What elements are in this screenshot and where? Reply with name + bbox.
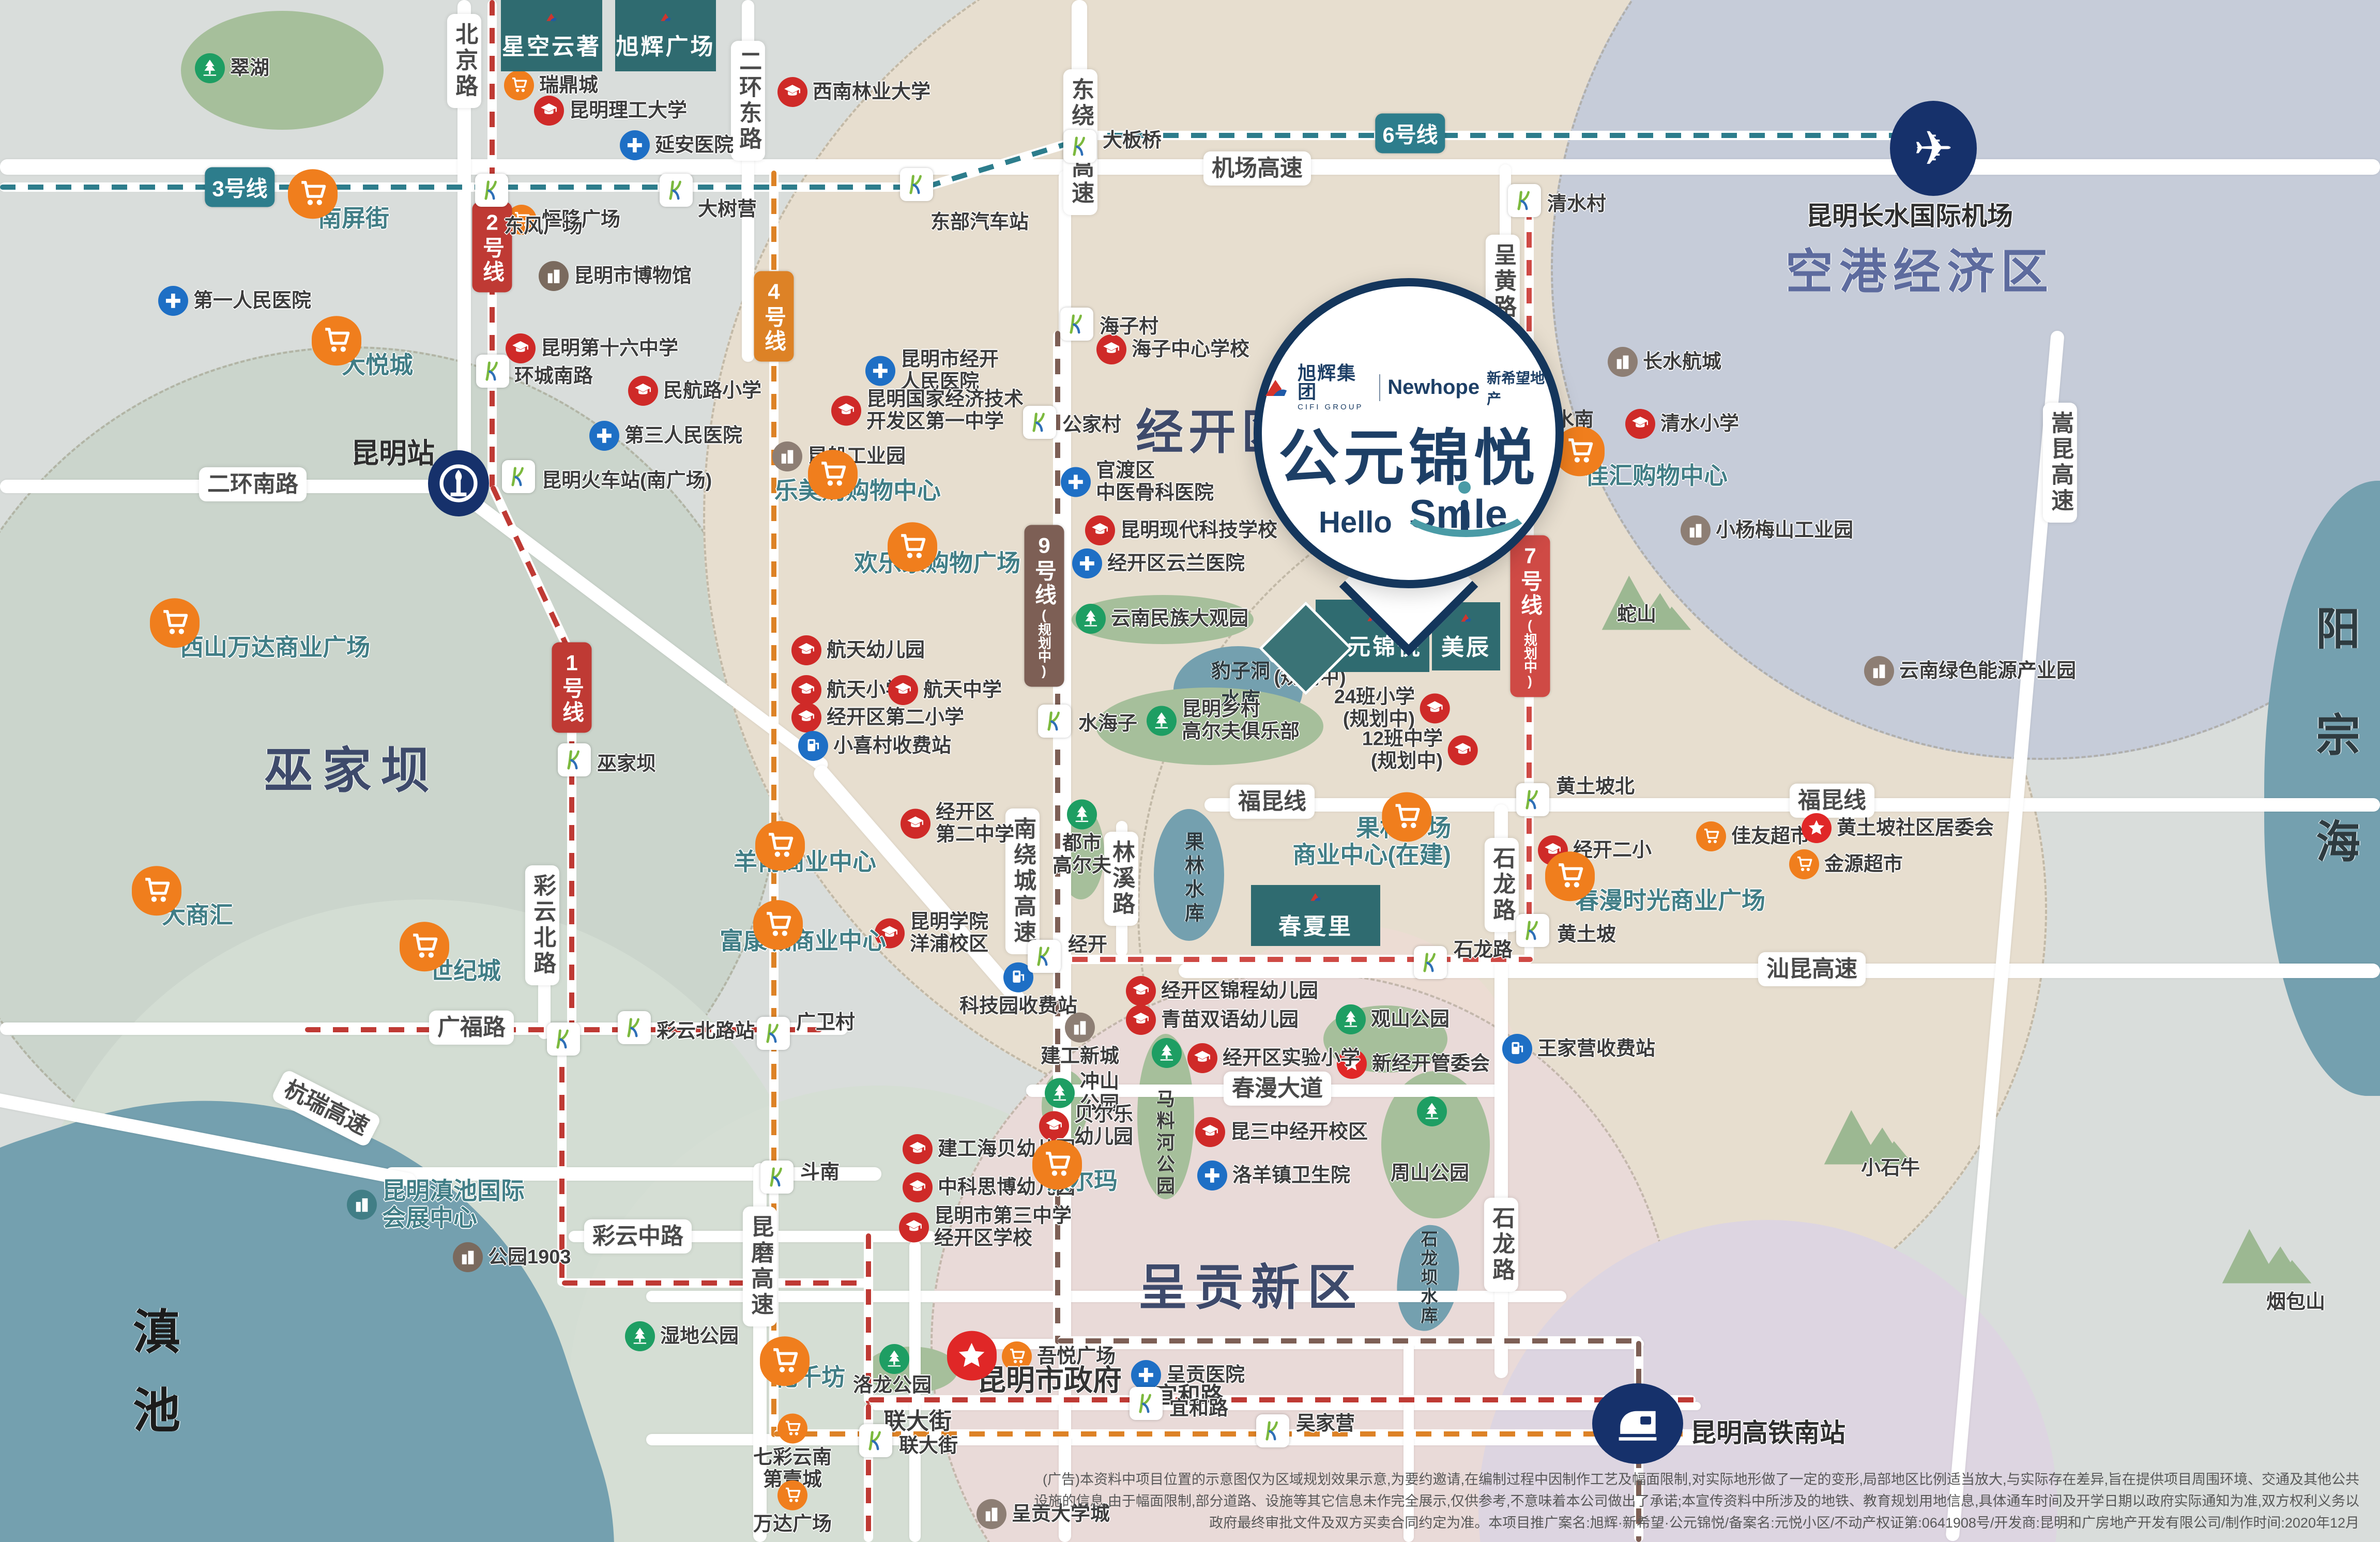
mall-glyph bbox=[295, 176, 330, 211]
station-label: 海子村 bbox=[1100, 310, 1158, 339]
industry-icon bbox=[772, 441, 802, 471]
park-icon bbox=[625, 1321, 655, 1351]
cifi-glyph bbox=[545, 10, 558, 24]
area-label: 空港经济区 bbox=[1786, 234, 2054, 302]
park-glyph bbox=[199, 57, 221, 79]
museum-icon bbox=[453, 1242, 483, 1272]
poi-industry[interactable]: 建工新城 bbox=[1041, 1013, 1119, 1068]
location-map: 旭辉集团 CIFI GROUP Newhope 新希望地产 公元锦悦 Hello… bbox=[0, 0, 2380, 1542]
poi-label: 观山公园 bbox=[1371, 1009, 1450, 1031]
mall-glyph bbox=[815, 457, 850, 493]
metro-station[interactable] bbox=[475, 174, 508, 207]
poi-label: 昆明学院洋浦校区 bbox=[910, 911, 988, 955]
metro-station[interactable] bbox=[660, 174, 693, 207]
toll-glyph bbox=[1008, 967, 1029, 988]
metro-station[interactable] bbox=[757, 1017, 790, 1050]
school-icon bbox=[1195, 1117, 1225, 1147]
poi-school[interactable]: 航天幼儿园 bbox=[791, 635, 925, 665]
poi-label: 12班中学(规划中) bbox=[1362, 728, 1443, 772]
poi-label: 民航路小学 bbox=[663, 380, 761, 402]
mall-glyph bbox=[508, 74, 530, 96]
poi-school[interactable]: 清水小学 bbox=[1625, 409, 1739, 439]
cifi-mini-logo bbox=[659, 10, 673, 24]
poi-label: 清水小学 bbox=[1660, 413, 1739, 435]
mall-glyph bbox=[406, 928, 442, 964]
poi-label: 公园1903 bbox=[488, 1246, 571, 1269]
road-label: 嵩昆高速 bbox=[2043, 403, 2077, 523]
poi-label: 航天中学 bbox=[923, 679, 1002, 701]
metro-station[interactable] bbox=[558, 743, 591, 776]
metro-K-icon bbox=[664, 178, 688, 202]
poi-label: 航天幼儿园 bbox=[827, 639, 925, 662]
station-label: 黄土坡北 bbox=[1556, 770, 1635, 799]
school-glyph bbox=[510, 338, 531, 359]
poi-label: 佳友超市 bbox=[1731, 826, 1810, 848]
park-icon bbox=[1045, 1078, 1075, 1108]
metro-K-icon bbox=[1068, 134, 1092, 158]
poi-school[interactable]: 昆明理工大学 bbox=[534, 96, 687, 126]
mall-glyph bbox=[762, 828, 798, 864]
metro-station[interactable] bbox=[547, 1022, 580, 1056]
poi-label: 欢乐家购物广场 bbox=[854, 550, 1020, 577]
road-segment bbox=[0, 159, 2380, 175]
metro-station[interactable] bbox=[1060, 308, 1093, 341]
poi-label: 西山万达商业广场 bbox=[180, 634, 370, 661]
mall-icon bbox=[777, 1413, 807, 1443]
metro-K-icon bbox=[1521, 919, 1545, 942]
station-label: 大树营 bbox=[698, 193, 757, 221]
hospital-glyph bbox=[624, 134, 646, 156]
poi-mall[interactable]: 大商汇 bbox=[157, 902, 233, 929]
poi-mall[interactable]: 春漫时光商业广场 bbox=[1570, 888, 1765, 914]
poi-school[interactable]: 昆明市第三中学经开区学校 bbox=[899, 1205, 1072, 1249]
hospital-glyph bbox=[593, 425, 615, 447]
hospital-glyph bbox=[1076, 553, 1098, 574]
road-label: 机场高速 bbox=[1203, 151, 1311, 186]
mall-glyph bbox=[1700, 826, 1722, 847]
park-icon bbox=[1147, 706, 1177, 736]
development-box[interactable]: 旭辉广场 bbox=[615, 0, 716, 71]
park-glyph bbox=[1049, 1082, 1071, 1104]
gov-icon bbox=[1802, 813, 1832, 843]
poi-museum[interactable]: 公园1903 bbox=[453, 1242, 571, 1272]
mall-icon bbox=[132, 866, 181, 915]
poi-school[interactable]: 经开区第二小学 bbox=[791, 703, 964, 732]
industry-glyph bbox=[776, 446, 798, 467]
poi-hospital[interactable]: 呈贡医院 bbox=[1131, 1360, 1245, 1390]
metro-K-icon bbox=[562, 748, 586, 772]
metro-station[interactable] bbox=[1516, 914, 1549, 947]
cifi-mini-logo bbox=[545, 10, 558, 24]
poi-label: 长水航城 bbox=[1643, 351, 1721, 373]
poi-label: 金源超市 bbox=[1824, 853, 1903, 876]
station-label: 环城南路 bbox=[514, 360, 593, 388]
metro-station[interactable] bbox=[1508, 184, 1541, 217]
school-icon bbox=[791, 635, 821, 665]
poi-school[interactable]: 12班中学(规划中) bbox=[1362, 728, 1478, 772]
area-label: 昆明站 bbox=[351, 431, 435, 471]
poi-label: 万达广场 bbox=[753, 1514, 832, 1536]
station-label: 联大街 bbox=[899, 1429, 958, 1458]
park-glyph bbox=[1340, 1009, 1362, 1030]
hospital-glyph bbox=[1065, 471, 1087, 493]
poi-hospital[interactable]: 经开区云兰医院 bbox=[1072, 548, 1245, 578]
school-icon bbox=[901, 808, 930, 838]
toll-icon bbox=[798, 731, 828, 761]
logo-divider bbox=[1379, 374, 1380, 401]
poi-gov[interactable]: 昆明市政府 bbox=[972, 1365, 1122, 1397]
poi-school[interactable]: 海子中心学校 bbox=[1096, 334, 1249, 364]
poi-hospital[interactable]: 延安医院 bbox=[620, 130, 734, 160]
poi-mall[interactable]: 金源超市 bbox=[1789, 849, 1903, 879]
mall-glyph bbox=[139, 873, 174, 908]
metro-station[interactable] bbox=[1414, 946, 1447, 979]
poi-school[interactable]: 西南林业大学 bbox=[777, 77, 930, 107]
metro-station[interactable] bbox=[1038, 705, 1071, 738]
school-glyph bbox=[903, 1216, 925, 1238]
area-label: 果林水库 bbox=[1179, 831, 1207, 926]
bullet-train-glyph bbox=[1611, 1397, 1665, 1451]
poi-hospital[interactable]: 昆明市经开人民医院 bbox=[865, 348, 999, 392]
park-glyph bbox=[1071, 804, 1093, 826]
poi-label: 小喜村收费站 bbox=[833, 735, 951, 757]
hill-label: 小石牛 bbox=[1861, 1152, 1920, 1180]
newhope-brand: Newhope bbox=[1387, 376, 1479, 399]
development-box[interactable]: 星空云著 bbox=[501, 0, 602, 71]
mall-glyph bbox=[1562, 433, 1597, 469]
mall-icon bbox=[1545, 851, 1595, 901]
mall-icon bbox=[777, 1480, 807, 1510]
poi-label: 昆明乡村高尔夫俱乐部 bbox=[1182, 698, 1300, 742]
station-label: 东部汽车站 bbox=[930, 206, 1029, 234]
poi-school[interactable]: 昆明学院洋浦校区 bbox=[875, 911, 988, 955]
china-railway-glyph bbox=[435, 460, 482, 507]
cifi-logo-icon bbox=[1262, 373, 1290, 403]
station-label: 水海子 bbox=[1078, 707, 1137, 736]
school-glyph bbox=[1101, 339, 1122, 360]
poi-mall[interactable]: 南屏街 bbox=[313, 205, 389, 232]
toll-icon bbox=[1502, 1034, 1532, 1064]
poi-label: 昆明国家经济技术开发区第一中学 bbox=[866, 388, 1024, 432]
cifi-glyph bbox=[1309, 890, 1322, 904]
hospital-glyph bbox=[162, 290, 184, 312]
school-glyph bbox=[1130, 980, 1152, 1002]
poi-mall[interactable]: 佳友超市 bbox=[1696, 821, 1810, 851]
poi-park[interactable]: 云南民族大观园 bbox=[1076, 604, 1248, 634]
hospital-icon bbox=[1197, 1161, 1227, 1190]
metro-K-icon bbox=[1521, 788, 1545, 812]
poi-mall[interactable]: 万达广场 bbox=[753, 1480, 832, 1536]
poi-label: 佳汇购物中心 bbox=[1585, 463, 1728, 490]
metro-K-icon bbox=[1028, 410, 1051, 434]
station-label: 斗南 bbox=[800, 1156, 840, 1184]
poi-label: 昆明理工大学 bbox=[569, 100, 687, 122]
metro-station[interactable] bbox=[1023, 406, 1056, 439]
poi-industry[interactable]: 云南绿色能源产业园 bbox=[1864, 656, 2076, 686]
poi-park[interactable]: 湿地公园 bbox=[625, 1321, 739, 1351]
hospital-icon bbox=[1061, 467, 1091, 497]
park-icon bbox=[195, 53, 225, 83]
metro-station[interactable] bbox=[859, 1424, 892, 1457]
metro-K-icon bbox=[1418, 951, 1442, 974]
metro-K-icon bbox=[480, 178, 504, 202]
poi-mall[interactable]: 花千坊 bbox=[774, 1361, 845, 1391]
poi-school[interactable]: 经开区实验小学 bbox=[1187, 1043, 1360, 1073]
station-label: 大板桥 bbox=[1103, 124, 1162, 152]
metro-station[interactable] bbox=[618, 1011, 651, 1044]
mall-icon bbox=[760, 1336, 810, 1386]
park-icon bbox=[1067, 799, 1097, 829]
poi-label: 洛龙公园 bbox=[853, 1369, 932, 1397]
poi-label: 云南绿色能源产业园 bbox=[1899, 660, 2076, 682]
poi-hospital[interactable]: 官渡区中医骨科医院 bbox=[1061, 460, 1214, 503]
poi-mall[interactable]: 大悦城 bbox=[337, 352, 413, 379]
school-icon bbox=[1085, 515, 1115, 545]
museum-glyph bbox=[457, 1246, 479, 1268]
metro-station[interactable] bbox=[1256, 1414, 1289, 1447]
metro-K-icon bbox=[552, 1027, 575, 1051]
development-box[interactable]: 春夏里 bbox=[1251, 885, 1380, 946]
school-glyph bbox=[782, 81, 803, 103]
school-glyph bbox=[538, 100, 560, 121]
area-label: 滇池 bbox=[118, 1307, 187, 1464]
poi-label: 羊甫商业中心 bbox=[734, 849, 876, 876]
poi-label: 湿地公园 bbox=[660, 1325, 739, 1348]
road-label: 汕昆高速 bbox=[1758, 952, 1866, 986]
station-label: 吴家营 bbox=[1296, 1407, 1355, 1436]
mall-glyph bbox=[894, 529, 930, 565]
poi-toll[interactable]: 王家营收费站 bbox=[1502, 1034, 1655, 1064]
metro-station[interactable] bbox=[502, 460, 535, 493]
cifi-glyph bbox=[1459, 611, 1473, 624]
poi-mall[interactable]: 七彩云南第壹城 bbox=[753, 1413, 832, 1490]
poi-label: 昆明现代科技学校 bbox=[1120, 520, 1277, 542]
hsr-station-icon[interactable] bbox=[1592, 1383, 1683, 1464]
metro-station[interactable] bbox=[900, 168, 933, 201]
school-icon bbox=[1625, 409, 1655, 439]
school-glyph bbox=[907, 1138, 928, 1160]
road-label: 石龙路 bbox=[1485, 838, 1519, 932]
poi-mall[interactable]: 欢乐家购物广场 bbox=[854, 547, 1020, 577]
disclaimer-line: 设施的信息,由于幅面限制,部分道路、设施等其它信息未作完全展示,仅供参考,不意味… bbox=[1034, 1490, 2359, 1512]
metro-K-icon bbox=[507, 465, 530, 488]
poi-school[interactable]: 昆三中经开校区 bbox=[1195, 1117, 1368, 1147]
school-icon bbox=[628, 376, 658, 406]
poi-park[interactable]: 都市高尔夫 bbox=[1052, 799, 1111, 876]
hospital-glyph bbox=[1201, 1165, 1223, 1186]
mall-glyph bbox=[760, 907, 796, 943]
poi-label: 延安医院 bbox=[655, 134, 734, 157]
metro-line-badge: 3号线 bbox=[205, 167, 274, 207]
poi-industry[interactable]: 长水航城 bbox=[1608, 347, 1721, 377]
metro-K-icon bbox=[1065, 312, 1089, 336]
poi-school[interactable]: 经开区锦程幼儿园 bbox=[1126, 976, 1318, 1006]
poi-gov[interactable]: 黄土坡社区居委会 bbox=[1802, 813, 1994, 843]
park-icon bbox=[1417, 1096, 1447, 1126]
poi-label: 昆明市博物馆 bbox=[574, 265, 692, 287]
metro-line-badge: 4号线 bbox=[754, 271, 794, 362]
mall-glyph bbox=[767, 1343, 802, 1379]
poi-label: 昆明第十六中学 bbox=[541, 338, 678, 360]
poi-school[interactable]: 昆明现代科技学校 bbox=[1085, 515, 1277, 545]
school-glyph bbox=[1089, 520, 1111, 541]
poi-mall[interactable]: 乐美购购物中心 bbox=[774, 475, 941, 505]
poi-label: 都市高尔夫 bbox=[1052, 832, 1111, 876]
school-glyph bbox=[892, 679, 914, 701]
park-glyph bbox=[1421, 1101, 1443, 1122]
poi-school[interactable]: 青苗双语幼儿园 bbox=[1126, 1005, 1299, 1035]
road-label: 昆磨高速 bbox=[743, 1207, 777, 1326]
station-label: 黄土坡 bbox=[1557, 918, 1616, 946]
area-label: 阳宗海 bbox=[2302, 605, 2367, 925]
poi-label: 青苗双语幼儿园 bbox=[1161, 1009, 1299, 1031]
airport-label: 昆明长水国际机场 bbox=[1806, 195, 2013, 233]
poi-mall[interactable]: 富康城商业中心 bbox=[720, 925, 886, 955]
metro-K-icon bbox=[1032, 944, 1056, 968]
park-icon bbox=[1152, 1038, 1182, 1068]
poi-hospital[interactable]: 洛羊镇卫生院 bbox=[1197, 1161, 1350, 1190]
school-glyph bbox=[1424, 697, 1446, 719]
mall-glyph bbox=[782, 1418, 803, 1440]
poi-toll[interactable]: 科技园收费站 bbox=[959, 963, 1077, 1018]
poi-label: 瑞鼎城 bbox=[539, 74, 598, 97]
poi-mall[interactable]: 沃尔玛 bbox=[1046, 1165, 1118, 1195]
disclaimer-line: (广告)本资料中项目位置的示意图仅为区域规划效果示意,为要约邀请,在编制过程中因… bbox=[1034, 1469, 2359, 1490]
poi-park[interactable] bbox=[1152, 1038, 1182, 1068]
metro-station[interactable] bbox=[476, 355, 509, 388]
metro-K-icon bbox=[1513, 189, 1536, 212]
poi-school[interactable]: 经开区第二中学 bbox=[901, 801, 1014, 845]
school-icon bbox=[1096, 334, 1126, 364]
school-glyph bbox=[1199, 1121, 1221, 1143]
school-icon bbox=[1126, 1005, 1156, 1035]
poi-park[interactable] bbox=[1417, 1096, 1447, 1126]
cifi-mini-logo bbox=[1459, 611, 1473, 624]
poi-park[interactable]: 翠湖 bbox=[195, 53, 269, 83]
poi-park[interactable]: 昆明乡村高尔夫俱乐部 bbox=[1147, 698, 1300, 742]
road-label: 彩云中路 bbox=[584, 1219, 692, 1254]
school-glyph bbox=[796, 639, 817, 661]
mountain-glyph bbox=[2218, 1210, 2316, 1287]
poi-label: 经开区实验小学 bbox=[1223, 1047, 1360, 1070]
station-label: 石龙路 bbox=[1454, 934, 1513, 962]
poi-school[interactable]: 昆明国家经济技术开发区第一中学 bbox=[831, 388, 1024, 432]
poi-label: 经开区云兰医院 bbox=[1107, 553, 1245, 575]
metro-K-icon bbox=[1134, 1392, 1158, 1415]
transit-line-red_line bbox=[562, 1280, 872, 1286]
poi-label: 王家营收费站 bbox=[1537, 1038, 1655, 1060]
metro-station[interactable] bbox=[760, 1161, 794, 1194]
station-label: 广卫村 bbox=[796, 1006, 855, 1034]
newhope-brand-cn: 新希望地产 bbox=[1487, 367, 1555, 408]
poi-mall[interactable]: 果林广场商业中心(在建) bbox=[1292, 815, 1456, 868]
road-label: 福昆线 bbox=[1230, 785, 1315, 819]
metro-station[interactable] bbox=[1130, 1387, 1163, 1420]
industry-glyph bbox=[1069, 1017, 1091, 1039]
transit-line-red_line bbox=[868, 1397, 1696, 1402]
toll-glyph bbox=[802, 735, 824, 757]
school-glyph bbox=[1043, 1115, 1065, 1137]
poi-label: 第三人民医院 bbox=[624, 425, 742, 447]
mall-icon bbox=[312, 316, 361, 365]
station-label: 巫家坝 bbox=[597, 747, 656, 776]
metro-station[interactable] bbox=[1063, 130, 1096, 163]
poi-mall[interactable]: 佳汇购物中心 bbox=[1580, 463, 1728, 490]
poi-label: 经开区第二中学 bbox=[936, 801, 1014, 845]
poi-label: 春漫时光商业广场 bbox=[1575, 888, 1765, 914]
poi-industry[interactable]: 小杨梅山工业园 bbox=[1681, 515, 1853, 545]
cifi-mini-logo bbox=[1309, 890, 1322, 904]
railway-station-icon[interactable] bbox=[428, 450, 489, 516]
museum-glyph bbox=[543, 265, 565, 287]
mall-icon bbox=[808, 450, 858, 499]
poi-label: 翠湖 bbox=[230, 57, 269, 80]
poi-label: 洛羊镇卫生院 bbox=[1232, 1165, 1350, 1187]
poi-school[interactable]: 民航路小学 bbox=[628, 376, 761, 406]
poi-expo[interactable]: 昆明滇池国际会展中心 bbox=[347, 1178, 525, 1231]
poi-label: 呈贡医院 bbox=[1166, 1364, 1245, 1386]
mall-icon bbox=[400, 922, 449, 971]
poi-mall[interactable]: 羊甫商业中心 bbox=[734, 846, 876, 876]
park-glyph bbox=[1080, 608, 1102, 630]
road-label: 二环南路 bbox=[199, 467, 307, 501]
poi-label: 官渡区中医骨科医院 bbox=[1096, 460, 1214, 503]
transit-line-brown_line bbox=[1058, 1338, 1642, 1343]
road-label: 北京路 bbox=[447, 14, 481, 108]
area-label: 马料河公园 bbox=[1151, 1089, 1178, 1198]
mall-glyph bbox=[157, 605, 192, 640]
industry-glyph bbox=[1868, 660, 1890, 682]
smile-arc bbox=[1396, 470, 1536, 537]
road-label: 石龙路 bbox=[1484, 1198, 1518, 1292]
poi-museum[interactable]: 昆明市博物馆 bbox=[539, 261, 692, 291]
poi-school[interactable]: 24班小学(规划中) bbox=[1334, 686, 1450, 730]
metro-K-icon bbox=[622, 1016, 646, 1040]
station-label: 宜和路 bbox=[1169, 1392, 1228, 1421]
mall-glyph bbox=[318, 323, 354, 358]
poi-hospital[interactable]: 第三人民医院 bbox=[589, 421, 742, 451]
metro-station[interactable] bbox=[1516, 783, 1549, 816]
poi-label: 小杨梅山工业园 bbox=[1716, 520, 1853, 542]
hospital-glyph bbox=[1135, 1364, 1157, 1386]
school-glyph bbox=[632, 380, 654, 402]
poi-park[interactable]: 观山公园 bbox=[1336, 1004, 1450, 1034]
poi-mall[interactable]: 西山万达商业广场 bbox=[175, 634, 370, 661]
hill-label: 烟包山 bbox=[2266, 1286, 2325, 1314]
poi-school[interactable]: 昆明第十六中学 bbox=[506, 333, 678, 363]
park-glyph bbox=[629, 1325, 651, 1347]
school-icon bbox=[1420, 693, 1450, 723]
park-icon bbox=[1336, 1004, 1366, 1034]
transit-line-teal_line bbox=[0, 185, 925, 190]
school-icon bbox=[888, 675, 918, 705]
poi-school[interactable]: 航天中学 bbox=[888, 675, 1002, 705]
industry-glyph bbox=[981, 1503, 1002, 1525]
poi-label: 云南民族大观园 bbox=[1111, 608, 1248, 630]
metro-K-icon bbox=[1261, 1419, 1285, 1443]
gov-glyph bbox=[1806, 817, 1827, 839]
industry-glyph bbox=[1685, 520, 1706, 541]
poi-label: 建工新城 bbox=[1041, 1046, 1119, 1068]
airport-icon[interactable]: ✈ bbox=[1890, 101, 1977, 196]
poi-toll[interactable]: 小喜村收费站 bbox=[798, 731, 951, 761]
school-icon bbox=[1187, 1043, 1217, 1073]
poi-hospital[interactable]: 第一人民医院 bbox=[158, 286, 311, 316]
school-glyph bbox=[1130, 1009, 1152, 1031]
metro-station[interactable] bbox=[1028, 940, 1061, 973]
poi-mall[interactable]: 世纪城 bbox=[424, 958, 501, 985]
poi-label: 新经开管委会 bbox=[1372, 1053, 1490, 1075]
